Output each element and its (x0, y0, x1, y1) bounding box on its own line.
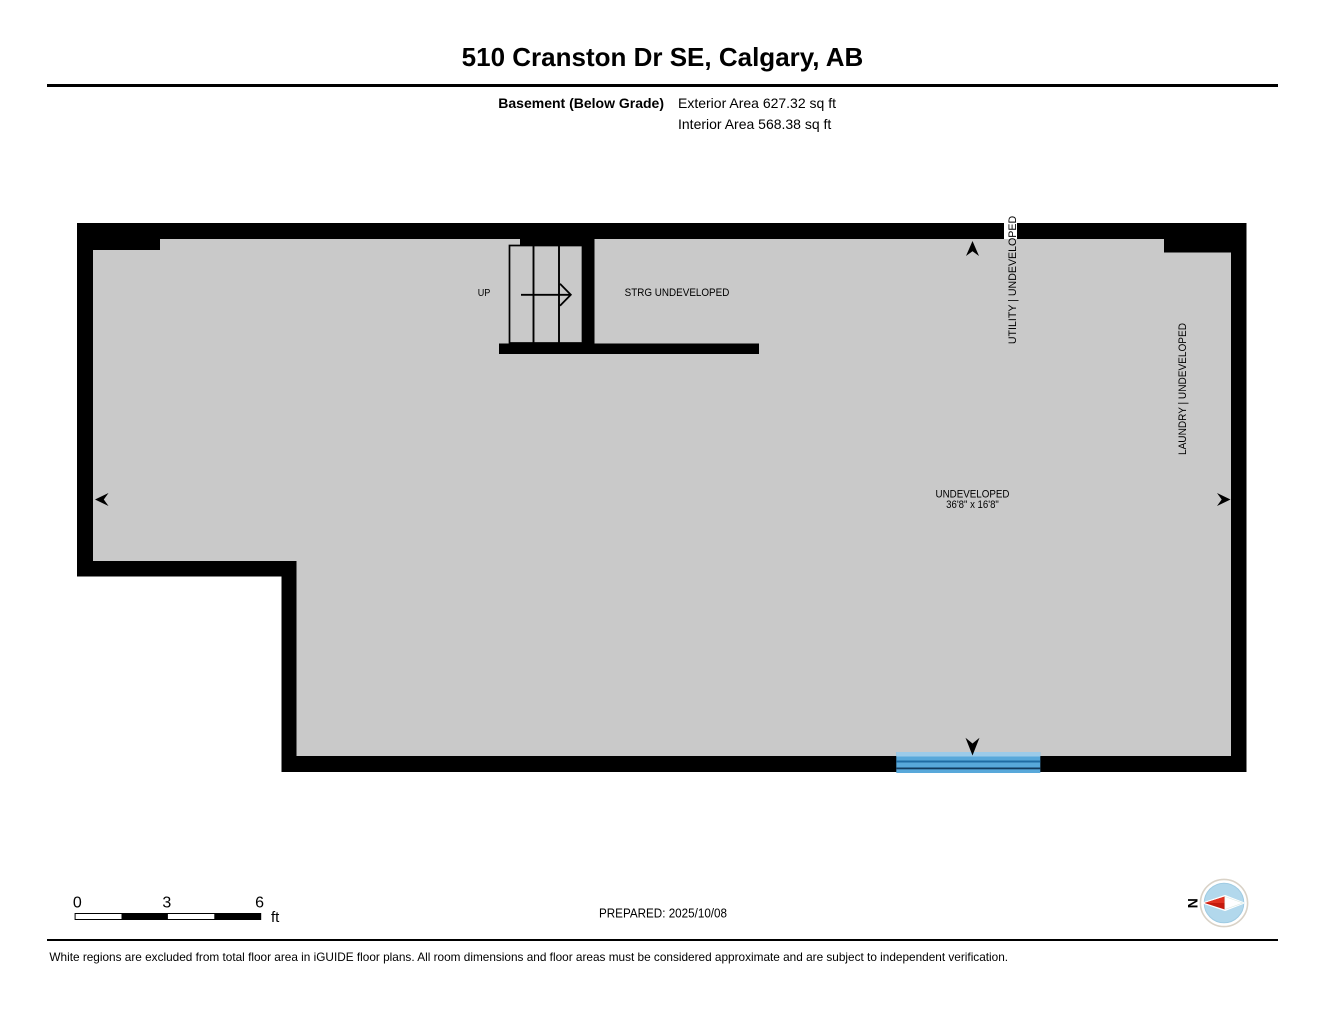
svg-text:6: 6 (255, 895, 264, 912)
svg-text:UTILITY | UNDEVELOPED: UTILITY | UNDEVELOPED (1007, 216, 1019, 344)
svg-text:3: 3 (162, 895, 171, 912)
svg-text:ft: ft (271, 909, 280, 926)
svg-text:36'8" x 16'8": 36'8" x 16'8" (946, 499, 999, 511)
svg-text:N: N (1185, 898, 1201, 908)
svg-text:0: 0 (73, 895, 82, 912)
svg-text:UP: UP (478, 288, 491, 299)
svg-text:LAUNDRY | UNDEVELOPED: LAUNDRY | UNDEVELOPED (1177, 323, 1189, 455)
svg-text:PREPARED: 2025/10/08: PREPARED: 2025/10/08 (599, 905, 727, 920)
svg-text:STRG UNDEVELOPED: STRG UNDEVELOPED (625, 287, 730, 299)
